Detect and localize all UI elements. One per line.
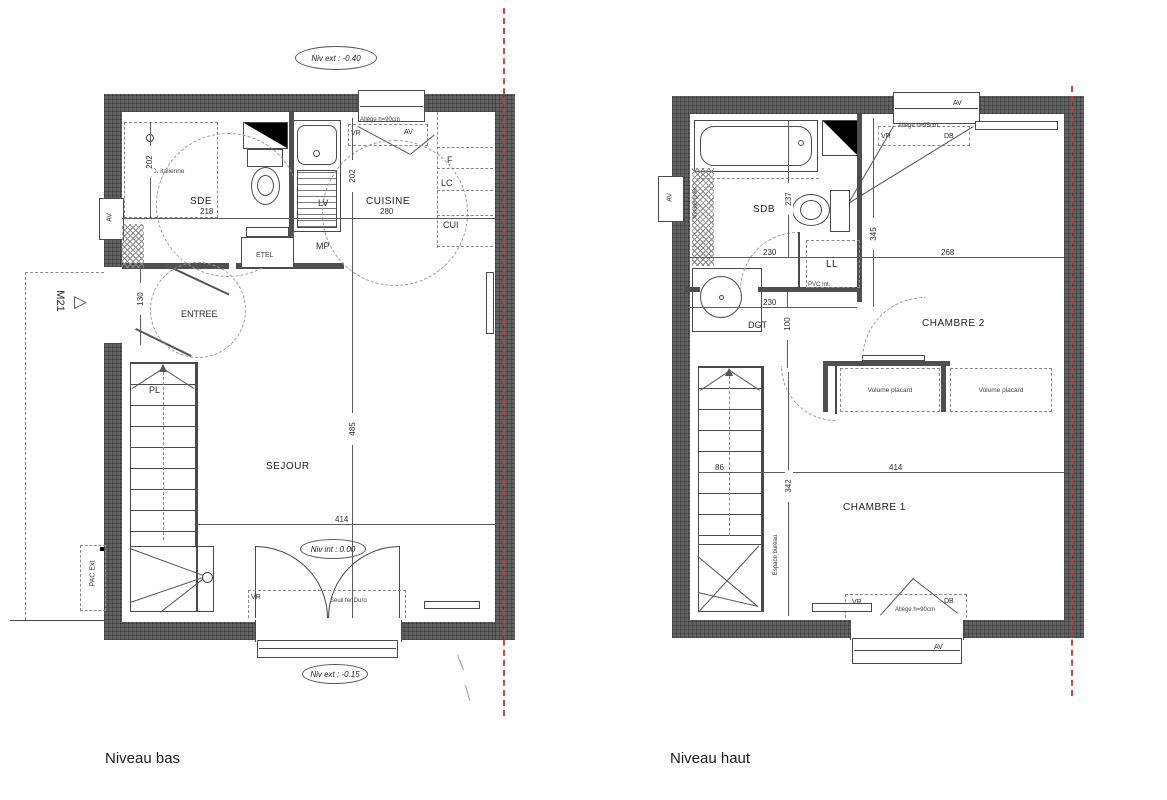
dim-ch1-depth: 342 (785, 470, 793, 502)
counter-dashed (437, 112, 438, 248)
french-door-opening (255, 620, 402, 642)
dim-sde-depth: 202 (146, 146, 154, 178)
dim-sejour-width: 414 (334, 516, 349, 524)
room-label-dgt: DGT (748, 321, 767, 330)
french-door-frame-line (259, 648, 396, 649)
room-label-pl: PL (149, 386, 160, 395)
terrace-line (10, 620, 104, 621)
radiator-bottom (424, 601, 480, 609)
front-door-opening (104, 266, 122, 344)
stair-rail (762, 366, 764, 612)
window-bottom-opening (850, 620, 964, 640)
floor-plan-sheet: PAC Ext M21 ▷ AV Allège h=90cm VR AV VR … (0, 0, 1167, 800)
room-label-sde: SDE (190, 196, 212, 207)
stair-axis (163, 372, 164, 540)
dim-ch2-width: 268 (940, 249, 955, 257)
room-label-chambre2: CHAMBRE 2 (922, 318, 985, 329)
dim-line-stair-ch1 (698, 472, 1064, 473)
window-bottom-line (854, 650, 960, 651)
sketch-mark (457, 655, 464, 670)
counter-dashed (437, 215, 493, 216)
dim-line-horizontal (122, 218, 495, 219)
etel-top-box (246, 227, 289, 237)
pac-ext-label: PAC Ext (90, 554, 97, 594)
dim-line-dgt (690, 307, 857, 308)
sink-drain (313, 150, 320, 157)
stair-axis (729, 376, 730, 536)
caption-niveau-bas: Niveau bas (105, 750, 180, 767)
caption-niveau-haut: Niveau haut (670, 750, 750, 767)
wall-right (1064, 96, 1084, 638)
dim-sejour-depth: 485 (349, 413, 357, 445)
dim-line-ch2-depth (873, 118, 874, 307)
mp-label: MP (316, 242, 330, 251)
shower-drain-hatch (122, 224, 144, 268)
window-top-allege: Allège h=95cm (898, 123, 938, 129)
placard-stub-right (941, 366, 946, 412)
dim-line-vertical-main (352, 118, 353, 618)
dim-ch2-depth: 345 (870, 218, 878, 250)
level-ext-top-text: Niv ext : -0.40 (311, 54, 360, 63)
level-int-text: Niv int : 0.00 (311, 545, 355, 554)
room-label-sejour: SEJOUR (266, 461, 310, 472)
dim-line-sejour-width (196, 524, 495, 525)
cui-label: CUI (443, 221, 459, 230)
dim-cuisine-width: 280 (379, 208, 394, 216)
lv-label: LV (318, 199, 328, 208)
dim-sdb-width: 230 (762, 249, 777, 257)
window-bottom-av: AV (934, 644, 943, 651)
sink-bowl (297, 125, 337, 165)
room-label-chambre1: CHAMBRE 1 (843, 502, 906, 513)
toilet-tank (830, 190, 850, 232)
sketch-mark (465, 685, 470, 701)
counter-dashed (437, 147, 493, 148)
partition-dgt-ch2 (857, 292, 862, 302)
kitchen-window-av: AV (404, 129, 413, 136)
bathtub-inner (700, 126, 812, 166)
dim-line-sdb-ch2 (690, 257, 1064, 258)
room-label-sdb: SDB (753, 204, 775, 215)
lc-label: LC (441, 179, 453, 188)
sdb-vidage-label: Vidage grille (693, 173, 699, 233)
placard-1-label: Volume placard (868, 387, 913, 394)
dim-stair-width: 86 (714, 464, 725, 472)
dim-dgt-depth: 100 (784, 308, 792, 340)
wall-top (104, 94, 515, 112)
wall-right (495, 94, 515, 640)
pvc-int-label: PVC Int. (808, 282, 830, 288)
radiator-top (975, 121, 1058, 130)
stair-rail (196, 362, 198, 612)
room-label-cuisine: CUISINE (366, 196, 410, 207)
stair-post (202, 572, 213, 583)
window-top-line (895, 108, 978, 109)
french-door-seuil: Seuil fer Duro (330, 598, 367, 604)
etel-label: ETEL (256, 252, 274, 259)
level-ext-bottom: Niv ext : -0.15 (302, 664, 368, 684)
placard-1: Volume placard (840, 368, 940, 412)
boundary-dashed (25, 272, 26, 620)
placard-2: Volume placard (950, 368, 1052, 412)
level-ext-bottom-text: Niv ext : -0.15 (310, 670, 359, 679)
ch1-door-arc (781, 366, 836, 421)
pac-dot (100, 547, 104, 551)
level-ext-top: Niv ext : -0.40 (295, 46, 377, 70)
dim-cuisine-depth: 202 (349, 160, 357, 192)
ll-label: LL (826, 259, 838, 270)
window-bottom-allege: Allège h=90cm (895, 607, 935, 613)
placard-2-label: Volume placard (979, 387, 1024, 394)
bathtub-edge-dashed (697, 178, 819, 179)
room-label-entree: ENTREE (181, 310, 218, 319)
radiator-bottom (812, 603, 872, 612)
wall-left (104, 94, 122, 640)
washbasin-drain (719, 295, 724, 300)
dim-sde-width: 218 (199, 208, 214, 216)
kitchen-window-line (360, 106, 423, 107)
window-left-av-label: AV (107, 203, 114, 233)
kitchen-window-allege: Allège h=90cm (360, 117, 400, 123)
fridge-label: F (447, 156, 453, 165)
placard-wall (823, 361, 950, 366)
dim-dgt-width: 230 (762, 299, 777, 307)
level-int: Niv int : 0.00 (300, 539, 366, 559)
sdb-door-arc (740, 232, 798, 290)
red-axis-line (1071, 86, 1073, 696)
french-door-outer-frame (257, 640, 398, 658)
window-top-av: AV (953, 100, 962, 107)
wall-top (672, 96, 1084, 114)
boundary-dashed (25, 272, 104, 273)
bathtub-drain (798, 140, 804, 146)
dim-entree: 130 (137, 283, 145, 315)
french-door-vr: VR (251, 594, 261, 601)
toilet-bowl-inner (800, 200, 822, 220)
dim-ch1-width: 414 (888, 464, 903, 472)
espace-bureau-label: Espace bureau (773, 515, 779, 595)
counter-dashed (437, 190, 493, 191)
m21-marker-icon: ▷ (74, 292, 87, 312)
radiator-right-wall (486, 272, 494, 334)
counter-dashed (437, 168, 493, 169)
window-left-av-label: AV (667, 183, 674, 213)
window-bottom-frame (852, 638, 962, 664)
dim-sdb-depth: 237 (785, 183, 793, 215)
red-axis-line (503, 8, 505, 716)
sdb-door-leaf (798, 232, 800, 288)
m21-label: M21 (54, 281, 66, 321)
partition-sdb-dgt (684, 287, 700, 292)
staircase (698, 366, 762, 546)
french-door-sill-zone (248, 590, 406, 618)
counter-dashed (437, 246, 493, 247)
ch2-door-arc (862, 297, 925, 360)
